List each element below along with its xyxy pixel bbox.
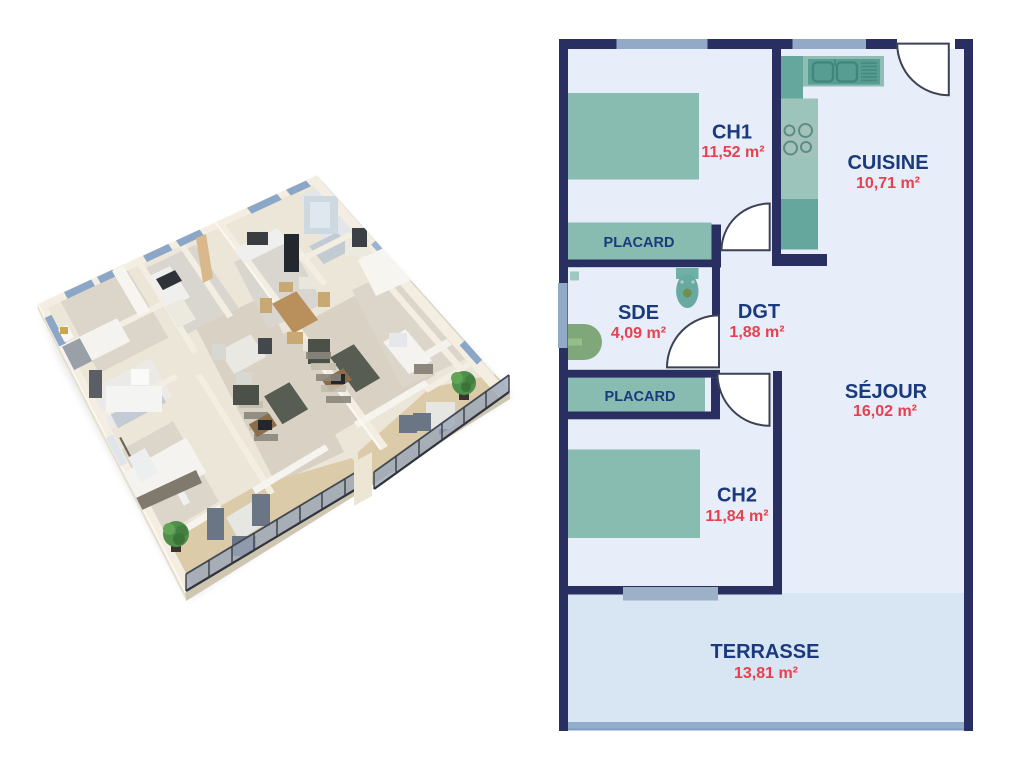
svg-text:SÉJOUR: SÉJOUR: [845, 380, 928, 403]
svg-text:CH2: CH2: [717, 485, 757, 507]
svg-text:SDE: SDE: [618, 302, 659, 324]
svg-text:DGT: DGT: [738, 301, 780, 323]
svg-text:CUISINE: CUISINE: [847, 152, 928, 174]
svg-text:11,84 m²: 11,84 m²: [705, 508, 768, 525]
svg-text:11,52 m²: 11,52 m²: [701, 144, 764, 161]
svg-text:CH1: CH1: [712, 122, 752, 144]
svg-text:4,09 m²: 4,09 m²: [611, 325, 666, 342]
svg-text:PLACARD: PLACARD: [604, 235, 675, 251]
svg-text:1,88 m²: 1,88 m²: [729, 324, 784, 341]
svg-text:PLACARD: PLACARD: [605, 389, 676, 405]
svg-text:TERRASSE: TERRASSE: [711, 641, 820, 663]
svg-text:10,71 m²: 10,71 m²: [856, 175, 920, 192]
svg-text:16,02 m²: 16,02 m²: [853, 403, 917, 420]
svg-text:13,81 m²: 13,81 m²: [734, 665, 798, 682]
